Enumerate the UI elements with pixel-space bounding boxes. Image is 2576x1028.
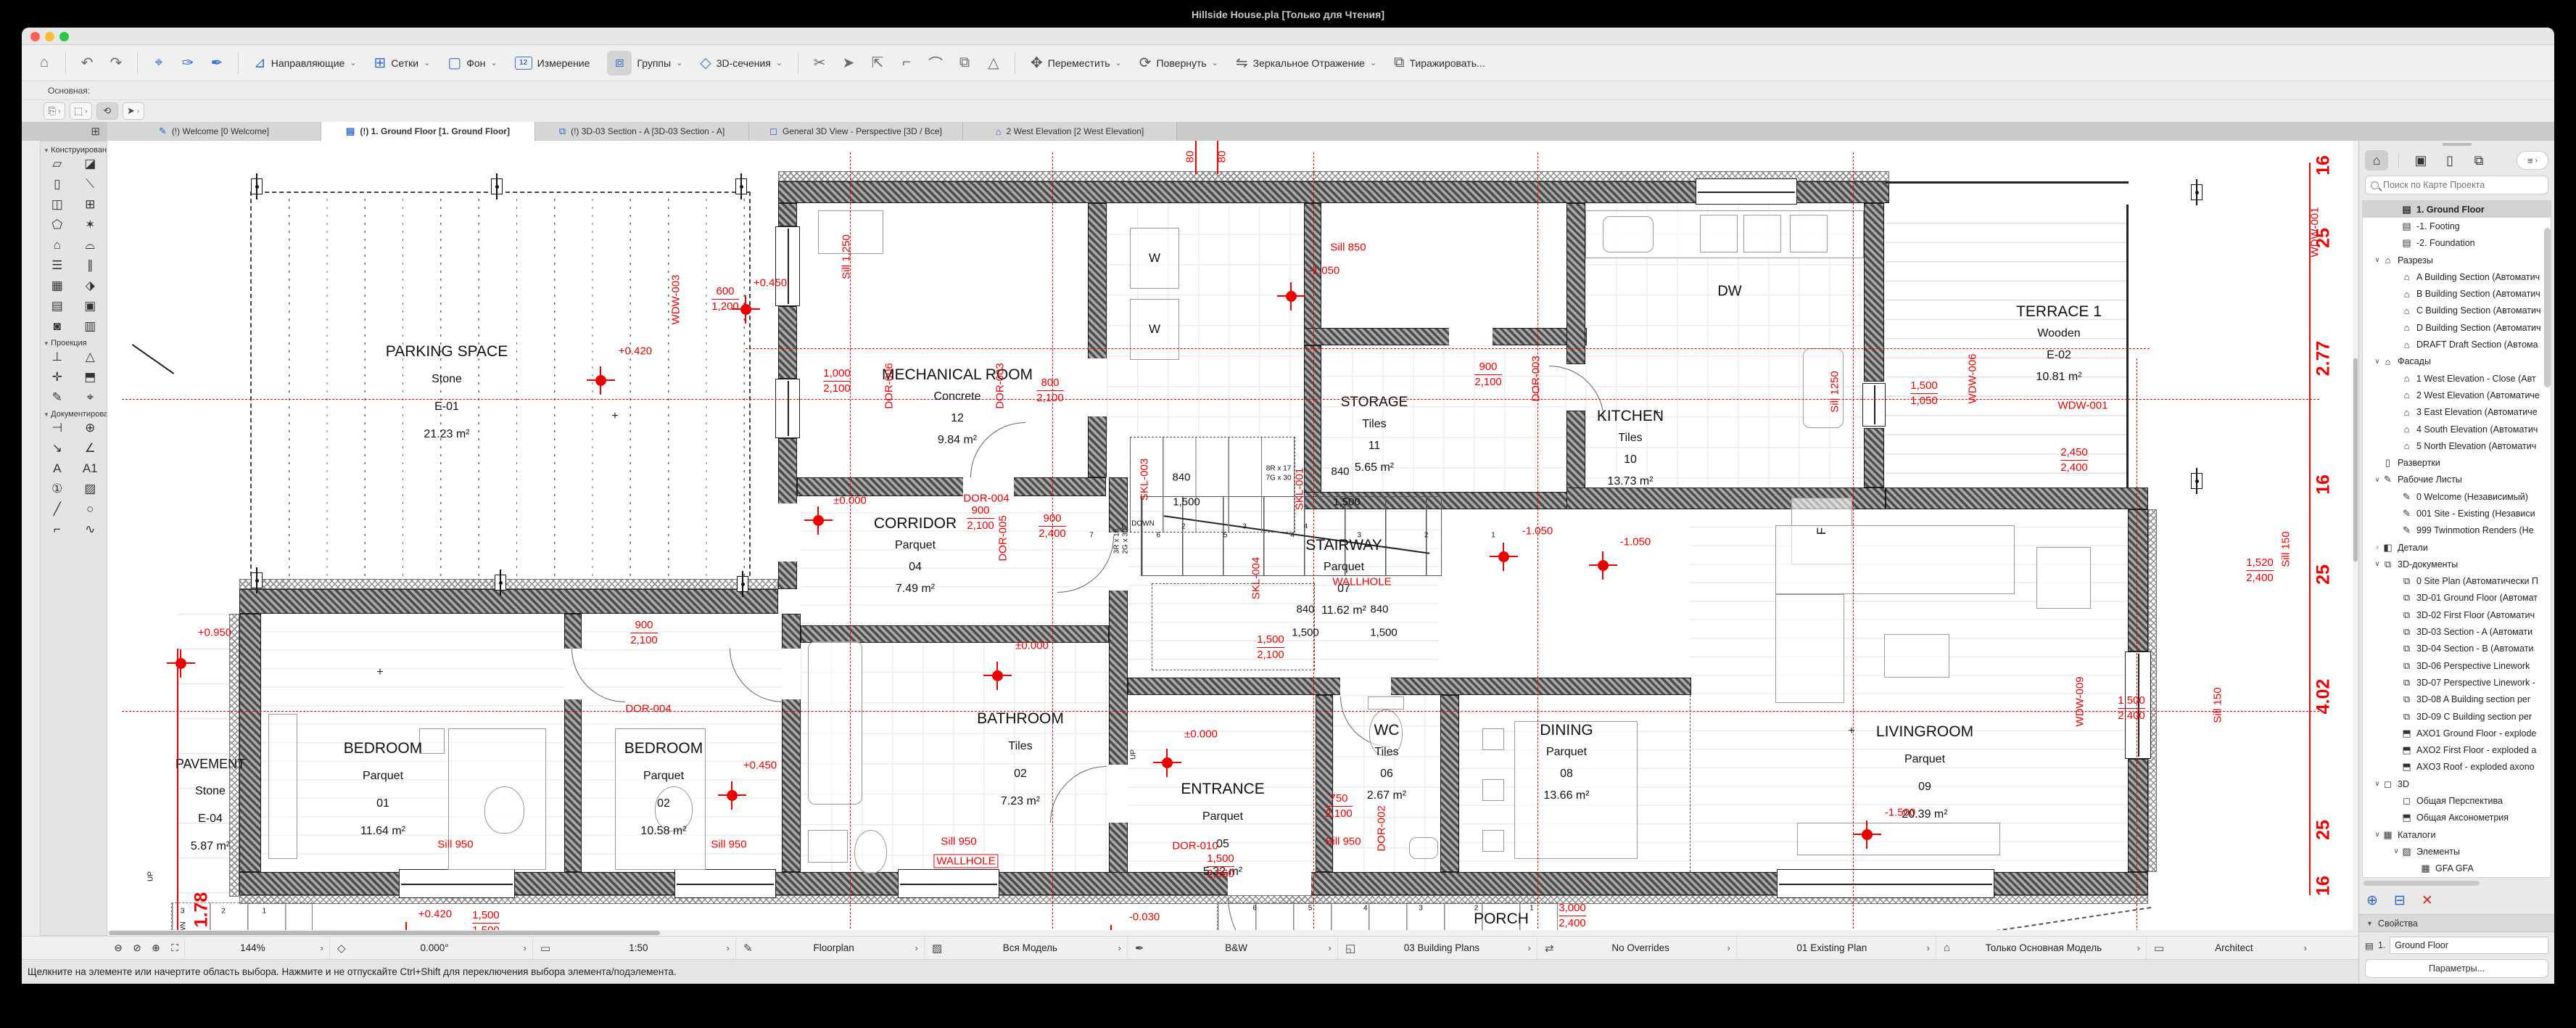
zoom-select-icon[interactable]: ⌖ (146, 51, 171, 75)
tree-item-4-south-elevation-автоматич[interactable]: ⌂4 South Elevation (Автоматич (2363, 421, 2551, 437)
tree-item-gfa-gfa[interactable]: ▦GFA GFA (2363, 860, 2551, 877)
status-hint-bar: Щелкните на элементе или начертите облас… (22, 959, 2358, 984)
tree-item-label: Фасады (2398, 356, 2431, 366)
favorites-dropdown[interactable]: ⎘› (44, 102, 65, 120)
insulation (239, 579, 778, 589)
skylight-skl003-outline (1130, 437, 1295, 532)
sink (808, 830, 848, 863)
pen-set-control[interactable]: ✎Floorplan› (735, 937, 924, 959)
tree-item-axo3-roof-exploded-axono[interactable]: ⬒AXO3 Roof - exploded axono (2363, 759, 2551, 776)
zone-stamp-tool[interactable]: ① (48, 481, 67, 497)
tree-item-label: D Building Section (Автоматич (2416, 323, 2541, 333)
model-view-options-control[interactable]: ⌂Только Основная Модель› (1936, 937, 2146, 959)
tree-item-icon: ✎ (2400, 525, 2413, 536)
zone-tool[interactable]: ▣ (80, 298, 99, 314)
tree-item-общая-аксонометрия[interactable]: ⬒Общая Аксонометрия (2363, 810, 2551, 826)
undo-icon[interactable]: ↶ (75, 51, 99, 75)
tree-item-3d[interactable]: ∨◻3D (2363, 776, 2551, 792)
marquee-dropdown[interactable]: ⬚› (70, 102, 92, 120)
level-annotation: -1.050 (1620, 536, 1651, 548)
dimension-pair: 9002,100 (1474, 360, 1502, 389)
room-label-wc: WCTiles062.67 m² (1367, 720, 1406, 807)
wall-tool[interactable]: ▱ (48, 156, 67, 172)
tree-item-label: Элементы (2416, 847, 2460, 857)
oven (1743, 215, 1781, 252)
tree-item-draft-draft-section-автома[interactable]: ⌂DRAFT Draft Section (Автома (2363, 336, 2551, 353)
dimension-pair: 8002,100 (1036, 376, 1064, 405)
zoom-previous-icon[interactable]: ⊘ (128, 940, 146, 956)
door-tag: DOR-003 (1530, 355, 1543, 401)
dimension-text: 80 (1216, 151, 1229, 163)
lamp-tool[interactable]: ✶ (80, 217, 99, 233)
tab-overview-icon[interactable]: ⊞ (22, 122, 107, 141)
axis-line (1052, 152, 1053, 936)
tree-item-icon: ▤ (2400, 204, 2413, 215)
tree-item-d-building-section-автоматич[interactable]: ⌂D Building Section (Автоматич (2363, 319, 2551, 336)
tree-item-label: 3D-документы (2398, 559, 2458, 569)
layer-combination-control[interactable]: ◱03 Building Plans› (1337, 937, 1537, 959)
room-label-pavement: PAVEMENTStoneE-045.87 m² (176, 750, 245, 860)
tree-item-icon: ▦ (2382, 829, 2394, 841)
separator (798, 52, 798, 74)
tree-item-label: 0 Site Plan (Автоматически П (2416, 576, 2538, 586)
window (775, 379, 800, 438)
curtainwall-tool[interactable]: ▦ (48, 278, 67, 294)
worksheet-tool[interactable]: ✎ (48, 390, 67, 406)
tree-item-001-site-existing-независи[interactable]: ✎001 Site - Existing (Независи (2363, 505, 2551, 522)
split-icon[interactable]: ✂ (807, 51, 832, 75)
3d-sections-icon: ◇ (700, 54, 711, 72)
shell-tool[interactable]: ⌓ (80, 237, 99, 253)
tree-item-каталоги[interactable]: ∨▦Каталоги (2363, 826, 2551, 843)
tree-horizontal-scrollbar[interactable] (2364, 881, 2480, 886)
text-tool[interactable]: A (48, 461, 67, 477)
tree-item-icon: ▯ (2382, 457, 2394, 469)
level-marker (992, 670, 1003, 681)
dimension-text: 1,500 (1292, 627, 1319, 639)
label-tool[interactable]: A1 (80, 461, 99, 477)
minimize-button[interactable] (45, 32, 54, 41)
tree-item--2-foundation[interactable]: ▤-2. Foundation (2363, 235, 2551, 252)
tree-item-label: AXO3 Roof - exploded axono (2416, 762, 2535, 772)
tree-item-1-ground-floor[interactable]: ▤1. Ground Floor (2363, 201, 2551, 218)
tree-item-2-west-elevation-автоматиче[interactable]: ⌂2 West Elevation (Автоматиче (2363, 387, 2551, 403)
settings-card-icon[interactable]: ⊟ (2394, 892, 2406, 909)
story-name-field[interactable] (2390, 937, 2548, 954)
tree-item-axo1-ground-floor-explode[interactable]: ⬒AXO1 Ground Floor - explode (2363, 725, 2551, 741)
origin-cross: + (376, 666, 383, 679)
door-opening (778, 503, 797, 562)
railing-tool[interactable]: ∥ (80, 258, 99, 274)
sofa (1775, 525, 2015, 594)
kitchen-sink (1603, 216, 1654, 252)
tree-item-label: Общая Перспектива (2416, 796, 2503, 806)
tree-item-icon: ⧉ (2400, 592, 2413, 604)
move-button[interactable]: ✥Переместить⌄ (1024, 50, 1128, 76)
separator (1015, 52, 1015, 74)
groups-button[interactable]: ⧈Группы⌄ (600, 50, 689, 76)
navigator-panel: ⌂ ▣ ▯ ⧉ ≡› ▤1. Ground Floor▤-1. Footing▤… (2358, 141, 2554, 984)
partial-structure-control[interactable]: ▨Вся Модель› (924, 937, 1127, 959)
wall (801, 625, 1109, 643)
origin-cross: + (1848, 725, 1854, 738)
tree-item-3-east-elevation-автоматиче[interactable]: ⌂3 East Elevation (Автоматиче (2363, 404, 2551, 421)
tree-item-icon: ⌂ (2400, 305, 2413, 316)
stair-step-numbers: 1 2 3 4 (1120, 523, 1336, 531)
multiply-icon: ⧉ (1394, 54, 1404, 71)
wall (1864, 428, 1884, 488)
tree-item-label: DRAFT Draft Section (Автома (2416, 340, 2538, 350)
tree-item-3d-06-perspective-linework[interactable]: ⧉3D-06 Perspective Linework (2363, 657, 2551, 674)
tree-item-label: 3 East Elevation (Автоматиче (2416, 407, 2538, 417)
dishwasher-label: DW (1717, 284, 1741, 300)
wardrobe (268, 714, 297, 859)
parameters-button[interactable]: Параметры... (2365, 959, 2548, 978)
level-marker (1498, 551, 1509, 562)
spline-tool[interactable]: ∿ (80, 522, 99, 538)
tree-item-фасады[interactable]: ∨⌂Фасады (2363, 353, 2551, 370)
level-annotation: +0.450 (743, 760, 777, 772)
arrow-mini-icon[interactable]: ➤ (836, 51, 861, 75)
tree-item-label: 3D (2398, 779, 2409, 789)
stair-tool[interactable]: ☰ (48, 258, 67, 274)
toolbox-section-design[interactable]: Конструирование (41, 141, 107, 156)
graphic-override-control[interactable]: ⇄No Overrides› (1537, 937, 1736, 959)
tree-item-label: Каталоги (2398, 830, 2435, 840)
tree-item-1-west-elevation-close-авт[interactable]: ⌂1 West Elevation - Close (Авт (2363, 370, 2551, 387)
tree-item-a-building-section-автоматич[interactable]: ⌂A Building Section (Автоматич (2363, 268, 2551, 285)
dimension-text: 25 (2313, 228, 2334, 248)
tree-item-label: 2 West Elevation (Автоматиче (2416, 390, 2540, 400)
tree-item-icon: ⌂ (2382, 356, 2394, 367)
roof-mini-icon[interactable]: △ (981, 51, 1006, 75)
navigator-search[interactable] (2365, 176, 2548, 194)
sofa (1775, 594, 1844, 703)
tree-item-3d-01-ground-floor-автомат[interactable]: ⧉3D-01 Ground Floor (Автомат (2363, 590, 2551, 606)
pavement-step-numbers: 3 2 1 (181, 908, 284, 916)
window-tool[interactable]: ⊞ (80, 197, 99, 213)
column-tool[interactable]: ▯ (48, 176, 67, 192)
tree-item-icon: ⧉ (2400, 609, 2413, 621)
door-tag: DOR-004 (963, 493, 1009, 505)
tree-item-icon: ⬒ (2400, 728, 2413, 739)
window (1696, 178, 1797, 205)
camera-tool[interactable]: ⌖ (80, 390, 99, 406)
zoom-level-control[interactable]: 144%› (184, 937, 329, 959)
grids-icon: ⊞ (374, 54, 387, 72)
fit-in-window-icon[interactable]: ⛶ (165, 940, 184, 956)
dimension-pair: 1,5001,050 (1910, 379, 1938, 408)
window (898, 869, 999, 898)
level-dimension-tool[interactable]: ⊕ (80, 420, 99, 436)
level-marker (1598, 560, 1609, 571)
redo-icon[interactable]: ↷ (104, 51, 128, 75)
door-tag: DOR-006 (883, 363, 896, 408)
arrow-tool-button[interactable]: ➤› (123, 102, 144, 120)
multiply-button[interactable]: ⧉Тиражировать... (1387, 50, 1492, 76)
zoom-button[interactable] (59, 32, 69, 41)
trim-mini-icon[interactable]: ⌐ (894, 51, 919, 75)
chair (1482, 728, 1504, 750)
resize-mini-icon[interactable]: ⧉ (952, 51, 977, 75)
axis-line (122, 711, 2319, 712)
level-annotation: +0.420 (619, 345, 652, 358)
tab-3d-section[interactable]: ⧉(!) 3D-03 Section - A [3D-03 Section - … (535, 122, 749, 141)
fill-tool[interactable]: ▨ (80, 481, 99, 497)
tree-item-label: AXO1 Ground Floor - explode (2416, 728, 2536, 739)
polyline-tool[interactable]: ⌐ (48, 522, 67, 538)
publisher-icon[interactable]: ⧉ (2467, 150, 2490, 170)
tree-item-label: 1. Ground Floor (2416, 205, 2485, 215)
tree-item-3d-08-a-building-section-per[interactable]: ⧉3D-08 A Building section per (2363, 691, 2551, 708)
tree-item-icon: ⌂ (2400, 440, 2413, 451)
menubar-strip: Hillside House.pla [Только для Чтения] (0, 0, 2576, 28)
panel-drag-handle[interactable] (2443, 143, 2472, 146)
tree-item-c-building-section-автоматич[interactable]: ⌂C Building Section (Автоматич (2363, 303, 2551, 319)
tree-item--1-footing[interactable]: ▤-1. Footing (2363, 218, 2551, 234)
properties-header[interactable]: ▼Свойства (2359, 914, 2554, 932)
layout-book-icon[interactable]: ▯ (2438, 150, 2461, 170)
wall (2128, 759, 2148, 872)
dimension-pair: 7502,100 (1325, 791, 1353, 821)
sill-annotation: Sill 950 (941, 836, 976, 848)
dimension-text: 25 (2313, 564, 2334, 585)
chevron-down-icon: ⌄ (1370, 58, 1376, 67)
sill-annotation: Sill 950 (437, 839, 473, 851)
skylight-skl004-outline (1152, 583, 1315, 670)
tree-item-icon: ⌂ (2400, 289, 2413, 300)
tree-item-разрезы[interactable]: ∨⌂Разрезы (2363, 252, 2551, 268)
tree-item-3d-07-perspective-linework-[interactable]: ⧉3D-07 Perspective Linework - (2363, 674, 2551, 691)
wallhole-annotation: WALLHOLE (933, 855, 998, 868)
tree-item-развертки[interactable]: ▯Развертки (2363, 454, 2551, 471)
orientation-control[interactable]: ◇0.000°› (329, 937, 532, 959)
chevron-down-icon: ⌄ (490, 58, 497, 67)
dimension-pair: 1,5202,400 (2246, 556, 2274, 585)
tree-item-элементы[interactable]: ∨▨Элементы (2363, 843, 2551, 860)
inject-parameters-icon[interactable]: ✒ (205, 51, 229, 75)
tab-bar: ⊞ ✎(!) Welcome [0 Welcome] ▤(!) 1. Groun… (22, 122, 2554, 141)
mirror-button[interactable]: ⇋Зеркальное Отражение⌄ (1229, 50, 1383, 76)
tab-welcome[interactable]: ✎(!) Welcome [0 Welcome] (107, 122, 321, 141)
tree-item-icon: ✎ (2400, 491, 2413, 503)
view-map-icon[interactable]: ▣ (2409, 150, 2432, 170)
tree-item-label: 001 Site - Existing (Независи (2416, 509, 2535, 519)
story-number: 1. (2378, 940, 2385, 950)
toolbox-palette: Конструирование ▱◪▯⟍◫⊞⬠✶⌂⌓☰∥▦⬗▤▣◙▥ Проек… (40, 141, 107, 936)
dimension-pair: 2,4502,400 (2060, 445, 2088, 474)
tree-item-999-twinmotion-renders-не[interactable]: ✎999 Twinmotion Renders (Не (2363, 522, 2551, 539)
tree-item-label: 3D-07 Perspective Linework - (2416, 678, 2535, 688)
reset-button[interactable]: ⟲ (96, 102, 118, 120)
pen-color-control[interactable]: ✒B&W› (1127, 937, 1337, 959)
tree-item-label: C Building Section (Автоматич (2416, 305, 2541, 316)
tree-item-icon: ✎ (2382, 474, 2394, 485)
tree-item-3d-03-section-a-автомати[interactable]: ⧉3D-03 Section - A (Автомати (2363, 623, 2551, 640)
chevron-down-icon: ⌄ (1115, 58, 1122, 67)
project-map-tree: ▤1. Ground Floor▤-1. Footing▤-2. Foundat… (2362, 200, 2551, 878)
tree-item-icon: ⬒ (2400, 761, 2413, 773)
tree-item-icon: ▦ (2419, 863, 2432, 874)
horizontal-scrollbar[interactable] (107, 930, 2358, 936)
rotate-button[interactable]: ⟳Повернуть⌄ (1133, 50, 1225, 76)
floor-plan-canvas[interactable]: PARKING SPACEStoneE-0121.23 m² MECHANICA… (107, 141, 2358, 936)
tree-item-3d-04-section-b-автомати[interactable]: ⧉3D-04 Section - B (Автомати (2363, 641, 2551, 657)
dimension-text: 16 (2313, 876, 2334, 896)
tab-west-elevation[interactable]: ⌂2 West Elevation [2 West Elevation] (963, 122, 1177, 141)
home-icon[interactable]: ⌂ (32, 51, 57, 75)
stair-info-text: 8R x 17 (1266, 465, 1291, 473)
tree-item-0-welcome-независимый-[interactable]: ✎0 Welcome (Независимый) (2363, 488, 2551, 505)
tree-item-icon: ▨ (2400, 846, 2413, 858)
tree-item-icon: ⌂ (2400, 424, 2413, 435)
tree-item-0-site-plan-автоматически-п[interactable]: ⧉0 Site Plan (Автоматически П (2363, 573, 2551, 590)
dimension-tool[interactable]: ⊣ (48, 420, 67, 436)
room-label-bedroom2: BEDROOMParquet0210.58 m² (624, 735, 703, 845)
dimension-text: 840 (1331, 466, 1349, 478)
dimension-pair: 6001,200 (711, 284, 739, 313)
fillet-mini-icon[interactable]: ⌒ (923, 51, 948, 75)
slab-tool[interactable]: ◪ (80, 156, 99, 172)
mesh-tool[interactable]: ▤ (48, 298, 67, 314)
tab-ground-floor[interactable]: ▤(!) 1. Ground Floor [1. Ground Floor] (321, 122, 535, 141)
separator (2398, 152, 2399, 168)
dimension-style-control[interactable]: ▭Architect› (2146, 937, 2313, 959)
wall (1128, 678, 1691, 695)
grid-marker (251, 178, 263, 194)
renovation-filter-control[interactable]: 01 Existing Plan› (1736, 937, 1936, 959)
radial-dimension-tool[interactable]: ↘ (48, 440, 67, 456)
tree-item-icon: ⌂ (2400, 322, 2413, 333)
delete-icon[interactable]: ✕ (2422, 892, 2433, 909)
scale-control[interactable]: ▭1:50› (532, 937, 735, 959)
tree-item-рабочие-листы[interactable]: ∨✎Рабочие Листы (2363, 472, 2551, 488)
tree-item-b-building-section-автоматич[interactable]: ⌂B Building Section (Автоматич (2363, 285, 2551, 302)
tree-item-icon: ⌂ (2400, 407, 2413, 418)
window (1777, 869, 1994, 898)
bathtub (808, 641, 862, 805)
beam-tool[interactable]: ⟍ (80, 176, 99, 192)
wall (1304, 345, 1321, 509)
window (1862, 383, 1886, 427)
story-icon: ▤ (2365, 940, 2374, 951)
opening-tool[interactable]: ◙ (48, 318, 67, 334)
measure-button[interactable]: 12Измерение (508, 50, 597, 76)
wall (1304, 328, 1587, 345)
interior-elevation-tool[interactable]: ✛ (48, 369, 67, 385)
window-tag: WDW-003 (670, 275, 682, 325)
project-map-icon[interactable]: ⌂ (2365, 150, 2388, 170)
wall (2128, 509, 2148, 651)
toolbox-section-views[interactable]: Проекция (41, 334, 107, 349)
dimension-text: 16 (2313, 474, 2334, 495)
3d-sections-button[interactable]: ◇3D-сечения⌄ (693, 50, 789, 76)
tree-item-5-north-elevation-автоматич[interactable]: ⌂5 North Elevation (Автоматич (2363, 437, 2551, 454)
tree-item-детали[interactable]: ›◧Детали (2363, 539, 2551, 556)
elevation-tool[interactable]: △ (80, 349, 99, 365)
morph-tool[interactable]: ⬗ (80, 278, 99, 294)
vertical-scrollbar[interactable] (2353, 141, 2358, 936)
search-input[interactable] (2383, 180, 2543, 190)
tree-item-axo2-first-floor-exploded-a[interactable]: ⬒AXO2 First Floor - exploded a (2363, 742, 2551, 759)
tree-item-3d-09-c-building-section-per[interactable]: ⧉3D-09 C Building section per (2363, 708, 2551, 725)
armchair (2036, 547, 2091, 609)
zoom-out-icon[interactable]: ⊖ (109, 940, 128, 956)
object-tool[interactable]: ⬠ (48, 217, 67, 233)
angle-dimension-tool[interactable]: ∠ (80, 440, 99, 456)
line-tool[interactable]: ╱ (48, 501, 67, 517)
sill-annotation: Sill 1250 (1829, 371, 1841, 413)
tree-item-общая-перспектива[interactable]: ◻Общая Перспектива (2363, 792, 2551, 809)
tree-item-icon: ⧉ (2400, 660, 2413, 672)
axis-line (1853, 152, 1854, 936)
door-tool[interactable]: ◫ (48, 197, 67, 213)
window-tag: WDW-009 (2074, 677, 2086, 727)
sill-annotation: Sill 150 (2280, 531, 2292, 567)
tree-item-3d-02-first-floor-автоматич[interactable]: ⧉3D-02 First Floor (Автоматич (2363, 606, 2551, 623)
pick-up-parameters-icon[interactable]: ✑ (176, 51, 200, 75)
tree-item-icon: ▤ (2400, 221, 2413, 232)
3d-document-tool[interactable]: ⬒ (80, 369, 99, 385)
door-opening (1109, 765, 1128, 823)
tab-3d-perspective[interactable]: ◻General 3D View - Perspective [3D / Все… (749, 122, 963, 141)
3d-view-icon: ◻ (769, 126, 777, 137)
dishwasher (1790, 215, 1828, 252)
sill-annotation: Sill 150 (2212, 687, 2224, 723)
dimension-pair: 9002,400 (1039, 511, 1066, 540)
dimension-text: 1,500 (1173, 496, 1200, 509)
adjust-mini-icon[interactable]: ⇱ (865, 51, 890, 75)
axis-line (746, 348, 2150, 349)
door-opening (782, 649, 801, 699)
sink (1409, 837, 1438, 859)
add-viewpoint-icon[interactable]: ⊕ (2366, 892, 2378, 909)
titlebar[interactable] (22, 28, 2554, 45)
cooktop (1700, 215, 1738, 252)
close-button[interactable] (30, 32, 40, 41)
window-tag: WDW-006 (1967, 354, 1979, 404)
separator (137, 52, 138, 74)
tree-scrollbar[interactable] (2544, 228, 2551, 387)
door-tag: DOR-003 (994, 363, 1007, 408)
tree-item-label: Общая Аксонометрия (2416, 813, 2509, 823)
navigator-menu-button[interactable]: ≡› (2517, 151, 2548, 170)
search-icon (2371, 181, 2379, 189)
zoom-in-icon[interactable]: ⊕ (146, 940, 165, 956)
grid-marker (2191, 184, 2203, 200)
toolbox-section-document[interactable]: Документирование (41, 406, 107, 420)
porch-step-numbers: 6 5 4 3 2 1 (1252, 905, 1558, 913)
marker-tool[interactable]: ▥ (80, 318, 99, 334)
dimension-text: 16 (2313, 155, 2334, 176)
section-tool[interactable]: ⊥ (48, 349, 67, 365)
room-label-bathroom: BATHROOMTiles027.23 m² (977, 705, 1064, 815)
window-tag: WDW-001 (2058, 400, 2108, 412)
circle-tool[interactable]: ○ (80, 501, 99, 517)
wall (778, 306, 797, 379)
background-button[interactable]: ▢Фон⌄ (441, 50, 503, 76)
dimension-text: 2.77 (2313, 341, 2334, 377)
sill-annotation: Sill 1,250 (841, 234, 853, 279)
level-marker (1162, 757, 1173, 768)
tree-item-3d-документы[interactable]: ∨⧉3D-документы (2363, 556, 2551, 572)
grids-button[interactable]: ⊞Сетки⌄ (368, 50, 437, 76)
guides-button[interactable]: ⊿Направляющие⌄ (247, 50, 363, 76)
tree-item-label: 3D-08 A Building section per (2416, 694, 2530, 704)
roof-tool[interactable]: ⌂ (48, 237, 67, 253)
washer-label: W (1149, 322, 1160, 337)
separator (65, 52, 66, 74)
